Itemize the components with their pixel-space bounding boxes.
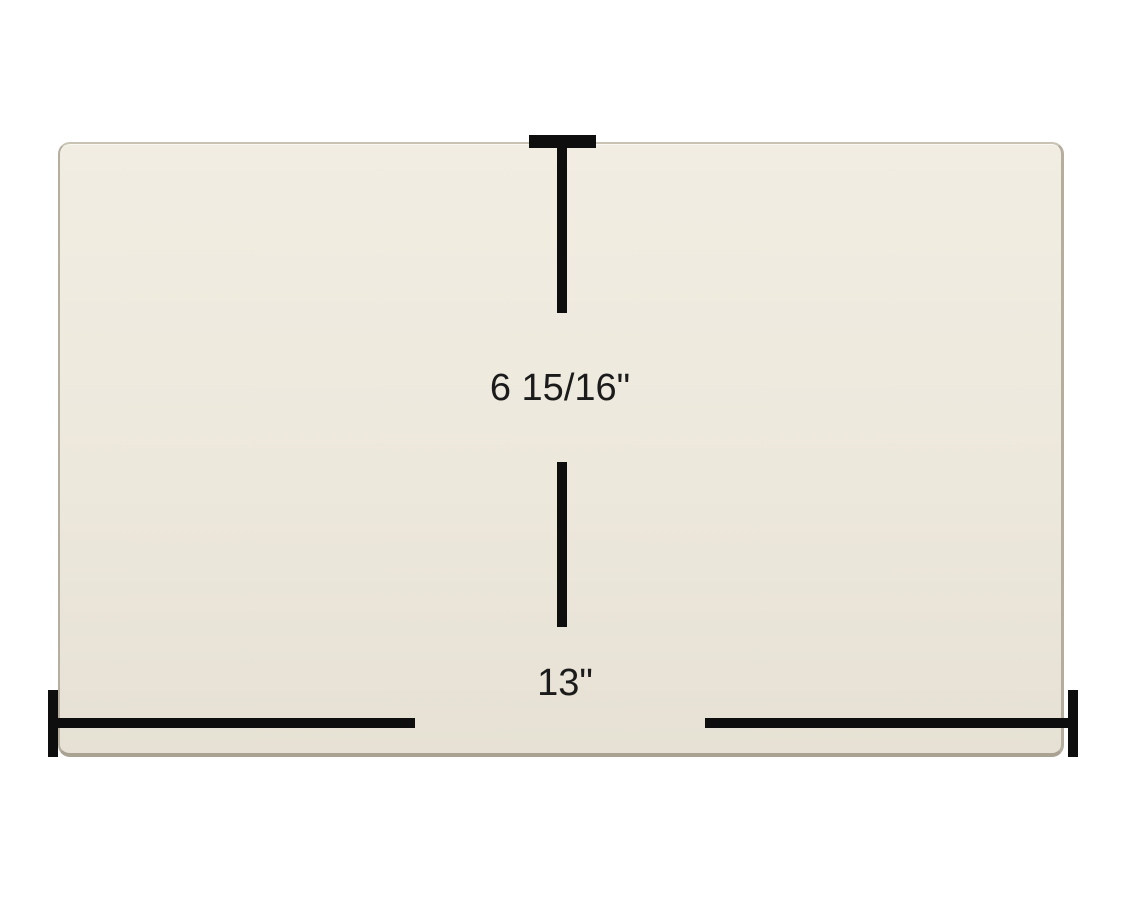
height-dimension-upper-line [557, 141, 567, 313]
height-dimension-lower-line [557, 462, 567, 627]
height-dimension-label: 6 15/16" [415, 366, 705, 410]
width-dimension-right-line [705, 718, 1078, 728]
width-dimension-label: 13" [465, 661, 665, 705]
width-dimension-left-line [48, 718, 415, 728]
width-dimension-right-endcap [1068, 690, 1078, 757]
dimension-diagram: 6 15/16" 13" [0, 0, 1125, 905]
